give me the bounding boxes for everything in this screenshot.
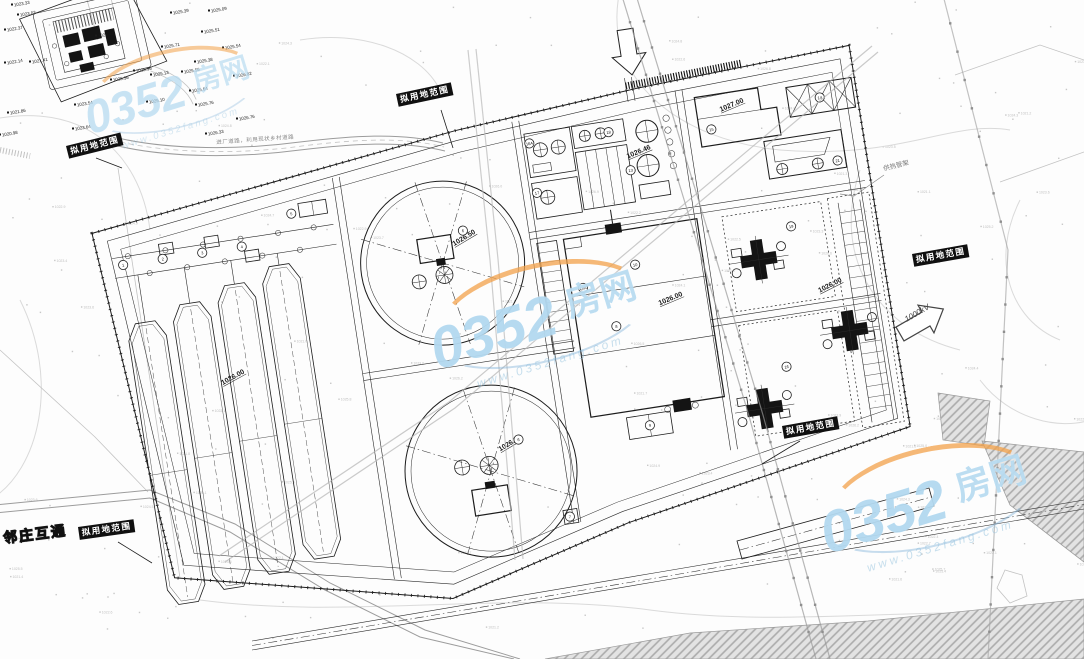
spot-elevation: 1025.54 — [225, 43, 242, 51]
survey-dot — [18, 538, 19, 539]
survey-dot — [54, 260, 55, 261]
pole-marker — [707, 230, 709, 232]
survey-dot — [326, 229, 327, 230]
survey-dot — [423, 62, 424, 63]
survey-dot — [420, 51, 421, 52]
survey-dot — [817, 499, 818, 500]
survey-dot — [41, 112, 42, 113]
survey-dot — [26, 304, 27, 305]
survey-dot — [897, 498, 898, 499]
survey-dot — [903, 445, 904, 446]
survey-dot — [385, 197, 386, 198]
pole-marker — [1003, 331, 1005, 333]
spot-elevation: 1021.41 — [32, 57, 49, 65]
survey-dot — [459, 333, 460, 334]
pole-marker — [693, 231, 695, 233]
survey-dot — [450, 377, 451, 378]
survey-dot — [795, 385, 796, 386]
survey-dot — [691, 236, 692, 237]
circular-tank-2 — [393, 373, 589, 569]
survey-dot — [899, 113, 900, 114]
faint-elevation: 1025.1 — [196, 491, 207, 495]
survey-dot — [706, 463, 707, 464]
faint-elevation: 1024.3 — [1008, 114, 1019, 118]
pole-marker — [769, 441, 771, 443]
pole-marker — [683, 151, 685, 153]
survey-dot — [330, 383, 331, 384]
survey-dot — [767, 583, 768, 584]
spot-elevation: 1022.37 — [7, 25, 24, 33]
faint-elevation: 1024.7 — [264, 214, 275, 218]
faint-elevation: 1024.9 — [649, 464, 660, 468]
spot-elevation: 1025.71 — [164, 42, 181, 50]
pole-marker — [806, 576, 808, 578]
survey-dot — [758, 68, 759, 69]
utility-line — [636, 0, 830, 659]
faint-elevation: 1021.6 — [905, 444, 916, 448]
survey-dot — [265, 443, 266, 444]
survey-dot — [958, 497, 959, 498]
pole-marker — [778, 523, 780, 525]
pole-marker — [1001, 358, 1003, 360]
survey-dot — [453, 154, 454, 155]
pole-marker — [995, 494, 997, 496]
survey-dot — [353, 228, 354, 229]
survey-dot — [189, 2, 190, 3]
faint-elevation: 1024.3 — [281, 41, 292, 45]
survey-dot — [282, 602, 283, 603]
pole-marker — [667, 99, 669, 101]
pole-marker — [949, 22, 951, 24]
survey-dot — [683, 494, 684, 495]
survey-dot — [503, 301, 504, 302]
survey-dot — [495, 45, 496, 46]
survey-dot — [20, 122, 21, 123]
faint-elevation: 1021.1 — [920, 190, 931, 194]
existing-facility-inset — [16, 0, 197, 138]
faint-elevation: 1025.2 — [983, 225, 994, 229]
faint-elevation: 1026.6 — [821, 251, 832, 255]
survey-dot — [167, 618, 168, 619]
faint-elevation: 1022.6 — [102, 611, 113, 615]
faint-elevation: 1026.8 — [760, 67, 771, 71]
faint-elevation: 1022.2 — [630, 211, 641, 215]
survey-dot — [1025, 215, 1026, 216]
survey-dot — [262, 503, 263, 504]
survey-dot — [698, 350, 699, 351]
survey-dot — [568, 304, 569, 305]
survey-dot — [846, 424, 847, 425]
faint-elevation: 1023.3 — [813, 229, 824, 233]
survey-dot — [722, 270, 723, 271]
pole-marker — [996, 467, 998, 469]
survey-dot — [257, 63, 258, 64]
survey-dot — [1075, 61, 1076, 62]
survey-dot — [642, 627, 643, 628]
site-elevation-label: 1026.00 — [817, 277, 843, 295]
survey-dot — [294, 340, 295, 341]
spot-elevation: 1023.54 — [77, 100, 94, 108]
spot-elevation: 1022.14 — [7, 58, 24, 66]
survey-dot — [834, 173, 835, 174]
survey-dot — [279, 42, 280, 43]
survey-dot — [1037, 191, 1038, 192]
survey-dot — [927, 261, 928, 262]
survey-dot — [52, 206, 53, 207]
main-process-building — [533, 197, 728, 449]
survey-dot — [460, 157, 461, 158]
survey-dot — [40, 312, 41, 313]
faint-elevation: 1026.0 — [492, 184, 503, 188]
survey-dot — [669, 40, 670, 41]
faint-elevation: 1023.4 — [57, 259, 68, 263]
survey-dot — [672, 59, 673, 60]
survey-dot — [992, 259, 993, 260]
survey-dot — [751, 475, 752, 476]
survey-dot — [1050, 26, 1051, 27]
survey-dot — [1047, 406, 1048, 407]
survey-dot — [613, 203, 614, 204]
process-units-block — [524, 112, 682, 219]
survey-dot — [965, 367, 966, 368]
survey-dot — [176, 111, 177, 112]
survey-dot — [212, 410, 213, 411]
survey-dot — [193, 492, 194, 493]
survey-dot — [995, 92, 996, 93]
site-elevation-label: 1026.00 — [658, 291, 684, 307]
spot-elevation: 1025.51 — [204, 27, 221, 35]
survey-dot — [914, 2, 915, 3]
faint-elevation: 1022.9 — [356, 227, 367, 231]
faint-elevation: 1023.6 — [1039, 191, 1050, 195]
survey-dot — [701, 482, 702, 483]
survey-dot — [628, 212, 629, 213]
survey-dot — [921, 553, 922, 554]
survey-dot — [165, 32, 166, 33]
pole-marker — [997, 440, 999, 442]
pole-marker — [978, 135, 980, 137]
survey-dot — [973, 543, 974, 544]
survey-dot — [905, 571, 906, 572]
pole-marker — [716, 310, 718, 312]
faint-elevation: 1021.2 — [488, 626, 499, 630]
faint-elevation: 1022.9 — [55, 205, 66, 209]
survey-dot — [730, 370, 731, 371]
survey-dot — [101, 219, 102, 220]
pole-marker — [730, 309, 732, 311]
survey-dot — [163, 124, 164, 125]
survey-dot — [412, 234, 413, 235]
pole-marker — [956, 50, 958, 52]
survey-dot — [828, 414, 829, 415]
survey-dot — [282, 481, 283, 482]
pole-marker — [792, 522, 794, 524]
survey-dot — [98, 355, 99, 356]
faint-elevation: 1021.3 — [837, 172, 848, 176]
pole-marker — [963, 79, 965, 81]
survey-dot — [739, 349, 740, 350]
site-plan-svg: 1026.51022.51026.01024.91021.01022.41021… — [0, 0, 1084, 659]
survey-dot — [49, 505, 50, 506]
survey-dot — [761, 190, 762, 191]
faint-elevation: 1022.1 — [215, 409, 226, 413]
faint-elevation: 1025.7 — [935, 568, 946, 572]
pole-marker — [999, 412, 1001, 414]
faint-elevation: 1025.8 — [341, 398, 352, 402]
pole-marker — [777, 468, 779, 470]
faint-elevation: 1023.7 — [373, 236, 384, 240]
pole-marker — [1005, 276, 1007, 278]
pole-marker — [991, 576, 993, 578]
faint-elevation: 1022.6 — [674, 58, 685, 62]
survey-dot — [113, 593, 114, 594]
spot-elevations: 1023.331023.031022.371022.141021.411021.… — [0, 0, 256, 137]
pole-marker — [675, 125, 677, 127]
survey-dot — [819, 252, 820, 253]
survey-dot — [875, 401, 876, 402]
survey-dot — [49, 24, 50, 25]
spot-elevation: 1025.13 — [153, 70, 170, 78]
utility-line — [943, 0, 1008, 659]
survey-dot — [365, 84, 366, 85]
faint-elevation: 1023.9 — [831, 414, 842, 418]
survey-dot — [310, 617, 311, 618]
survey-dot — [530, 17, 531, 18]
faint-elevation: 1024.8 — [672, 39, 683, 43]
survey-dot — [877, 27, 878, 28]
survey-dot — [891, 33, 892, 34]
survey-dot — [701, 396, 702, 397]
faint-elevation: 1026.9 — [588, 190, 599, 194]
pole-marker — [785, 550, 787, 552]
pump-cluster — [816, 302, 883, 359]
survey-dot — [626, 366, 627, 367]
survey-dot — [199, 181, 200, 182]
survey-dot — [844, 210, 845, 211]
survey-dot — [81, 306, 82, 307]
faint-elevation: 1021.2 — [1021, 111, 1032, 115]
pole-marker — [821, 631, 823, 633]
survey-dot — [960, 106, 961, 107]
pole-marker — [985, 164, 987, 166]
sedimentation-basins — [121, 262, 347, 606]
survey-dot — [745, 251, 746, 252]
survey-dot — [980, 226, 981, 227]
faint-elevation: 1023.4 — [702, 471, 713, 475]
survey-dot — [1057, 326, 1058, 327]
survey-dot — [87, 593, 88, 594]
survey-dot — [10, 576, 11, 577]
pole-marker — [800, 604, 802, 606]
survey-dot — [284, 379, 285, 380]
survey-dot — [215, 448, 216, 449]
pole-marker — [661, 126, 663, 128]
site-elevation-label: 1026.00 — [220, 369, 246, 387]
survey-dot — [61, 269, 62, 270]
pole-marker — [701, 257, 703, 259]
survey-dot — [168, 417, 169, 418]
survey-dot — [9, 568, 10, 569]
survey-dot — [1066, 89, 1067, 90]
survey-dot — [1058, 158, 1059, 159]
pole-marker — [993, 521, 995, 523]
faint-elevation: 1023.6 — [83, 305, 94, 309]
faint-elevation: 1022.1 — [259, 62, 270, 66]
survey-dot — [411, 362, 412, 363]
pole-marker — [637, 47, 639, 49]
pole-marker — [988, 631, 990, 633]
survey-dot — [736, 504, 737, 505]
utility-line — [476, 49, 523, 559]
spot-elevation: 1020.98 — [2, 130, 19, 138]
survey-dot — [453, 7, 454, 8]
spot-elevation: 1026.33 — [208, 129, 225, 137]
pole-marker — [770, 496, 772, 498]
survey-dot — [1074, 418, 1075, 419]
survey-dot — [634, 408, 635, 409]
pole-marker — [971, 107, 973, 109]
pole-marker — [1000, 220, 1002, 222]
faint-elevation: 1022.4 — [1076, 417, 1084, 421]
survey-dot — [765, 50, 766, 51]
spot-elevation: 1025.64 — [192, 86, 209, 94]
faint-elevation: 1022.5 — [730, 238, 741, 242]
site-plan-screenshot: 1026.51022.51026.01024.91021.01022.41021… — [0, 0, 1084, 659]
spot-elevation: 1025.76 — [198, 100, 215, 108]
survey-dot — [1077, 563, 1078, 564]
survey-dot — [683, 274, 684, 275]
survey-dot — [122, 119, 123, 120]
pole-marker — [715, 256, 717, 258]
survey-dot — [551, 45, 552, 46]
survey-dot — [838, 310, 839, 311]
pole-marker — [708, 284, 710, 286]
survey-dot — [984, 552, 985, 553]
office-building — [694, 85, 781, 147]
survey-dot — [267, 224, 268, 225]
faint-elevation: 1024.1 — [675, 283, 686, 287]
survey-dot — [782, 107, 783, 108]
survey-dot — [218, 561, 219, 562]
survey-dot — [924, 291, 925, 292]
survey-dot — [139, 612, 140, 613]
survey-dot — [26, 541, 27, 542]
faint-elevation: 1024.4 — [968, 366, 979, 370]
survey-dot — [302, 277, 303, 278]
survey-dot — [107, 596, 108, 597]
pole-marker — [754, 388, 756, 390]
faint-elevation: 1023.1 — [1077, 60, 1084, 64]
survey-dot — [29, 198, 30, 199]
survey-dot — [956, 9, 957, 10]
spot-elevation: 1023.33 — [14, 0, 31, 7]
spot-elevation: 1025.10 — [149, 97, 166, 105]
survey-dot — [547, 506, 548, 507]
survey-dot — [647, 465, 648, 466]
pole-marker — [763, 469, 765, 471]
survey-dot — [573, 317, 574, 318]
survey-dot — [486, 626, 487, 627]
pole-marker — [784, 495, 786, 497]
faint-elevation: 1025.0 — [916, 444, 927, 448]
pole-marker — [724, 336, 726, 338]
survey-dot — [338, 398, 339, 399]
spot-elevation: 1025.96 — [136, 66, 153, 74]
survey-dot — [396, 208, 397, 209]
survey-dot — [920, 235, 921, 236]
survey-dot — [889, 578, 890, 579]
faint-elevation: 1021.0 — [297, 340, 308, 344]
survey-dot — [489, 159, 490, 160]
faint-elevation: 1024.4 — [1080, 562, 1084, 566]
survey-dot — [1018, 112, 1019, 113]
survey-dot — [1012, 119, 1013, 120]
pole-marker — [722, 283, 724, 285]
pole-marker — [989, 603, 991, 605]
pole-marker — [659, 73, 661, 75]
pole-marker — [677, 179, 679, 181]
spot-elevation: 1025.56 — [184, 67, 201, 75]
entrance-arrow — [608, 27, 649, 78]
survey-dot — [939, 78, 940, 79]
survey-dot — [175, 606, 176, 607]
pole-marker — [807, 631, 809, 633]
survey-dot — [217, 225, 218, 226]
pole-marker — [1004, 303, 1006, 305]
survey-dot — [72, 351, 73, 352]
pole-marker — [992, 192, 994, 194]
survey-dot — [196, 110, 197, 111]
faint-elevation: 1025.5 — [12, 567, 23, 571]
survey-dot — [980, 131, 981, 132]
survey-dot — [140, 506, 141, 507]
survey-dot — [941, 373, 942, 374]
survey-dot — [679, 544, 680, 545]
survey-dot — [631, 343, 632, 344]
survey-dot — [932, 568, 933, 569]
faint-elevation: 1022.5 — [929, 260, 940, 264]
pole-marker — [1000, 385, 1002, 387]
survey-dot — [321, 56, 322, 57]
survey-dot — [810, 230, 811, 231]
hatched-areas — [545, 393, 1084, 659]
survey-dot — [159, 234, 160, 235]
survey-dot — [726, 307, 727, 308]
survey-dot — [1045, 364, 1046, 365]
pole-marker — [629, 21, 631, 23]
survey-dot — [761, 128, 762, 129]
survey-dot — [12, 217, 13, 218]
survey-dot — [934, 418, 935, 419]
survey-dot — [245, 616, 246, 617]
pole-marker — [792, 577, 794, 579]
pole-marker — [799, 549, 801, 551]
pole-marker — [755, 442, 757, 444]
pole-marker — [814, 604, 816, 606]
faint-elevation: 1026.2 — [452, 377, 463, 381]
survey-dot — [117, 395, 118, 396]
spot-elevation: 1025.38 — [197, 57, 214, 65]
faint-elevation: 1021.4 — [12, 575, 23, 579]
survey-dot — [757, 496, 758, 497]
survey-dot — [1005, 114, 1006, 115]
survey-dot — [811, 478, 812, 479]
survey-dot — [918, 507, 919, 508]
spot-elevation: 1025.09 — [211, 6, 228, 14]
survey-dot — [177, 453, 178, 454]
survey-dot — [24, 499, 25, 500]
survey-dot — [99, 611, 100, 612]
